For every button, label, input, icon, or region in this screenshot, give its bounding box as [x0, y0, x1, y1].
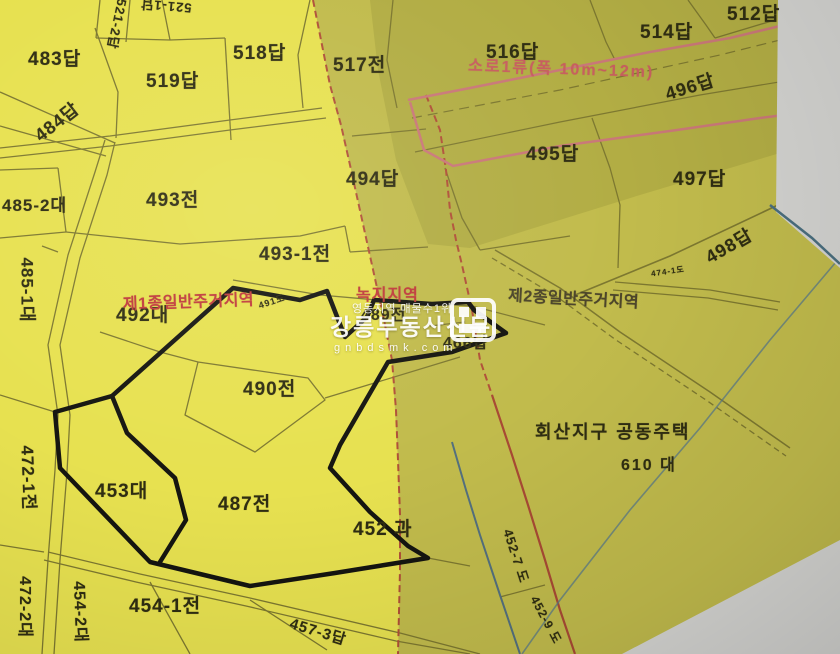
parcel-label-490: 490전 [243, 380, 296, 399]
parcel-label-514: 514답 [640, 23, 693, 42]
cadastral-map-photo: 483답 519답 518답 521-2답 521-1답 484답 517전 5… [0, 0, 840, 654]
watermark-logo-icon [450, 298, 496, 342]
parcel-label-517: 517전 [333, 56, 386, 75]
parcel-label-454-1: 454-1전 [129, 597, 201, 616]
parcel-label-472-1: 472-1전 [18, 445, 37, 511]
parcel-label-485-1: 485-1대 [19, 257, 36, 322]
parcel-label-452: 452 과 [353, 520, 412, 539]
parcel-label-453: 453대 [95, 482, 148, 501]
parcel-label-472-2: 472-2대 [16, 576, 32, 638]
parcel-label-483: 483답 [28, 50, 81, 69]
parcel-label-494: 494답 [346, 170, 399, 189]
parcel-label-512: 512답 [727, 5, 780, 24]
parcel-label-493-1: 493-1전 [259, 245, 331, 264]
parcel-label-518: 518답 [233, 44, 286, 63]
parcel-label-487: 487전 [218, 495, 271, 514]
parcel-label-485-2: 485-2대 [2, 197, 67, 214]
parcel-label-519: 519답 [146, 72, 199, 91]
green-zone-label: 녹지지역 [356, 288, 419, 304]
district-units-label: 610 대 [621, 458, 677, 474]
parcel-label-495: 495답 [526, 145, 579, 164]
watermark-url: gnbdsmk.com [334, 343, 457, 354]
parcel-label-454-2: 454-2대 [70, 581, 88, 643]
parcel-label-493: 493전 [146, 191, 199, 210]
parcel-label-497: 497답 [673, 170, 726, 189]
district-name-label: 회산지구 공동주택 [535, 423, 690, 441]
